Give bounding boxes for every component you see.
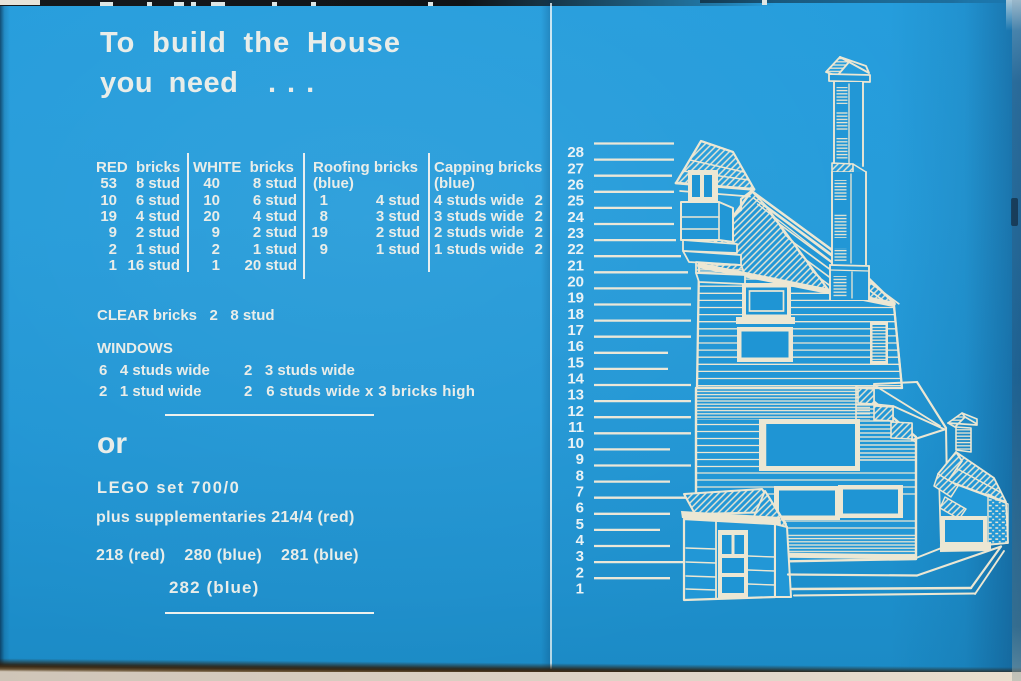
svg-text:16: 16 [567, 338, 584, 355]
svg-text:17: 17 [567, 322, 584, 339]
svg-text:21: 21 [567, 257, 584, 274]
svg-text:24: 24 [567, 209, 584, 226]
svg-text:18: 18 [567, 306, 584, 323]
svg-text:28: 28 [567, 144, 584, 161]
svg-text:22: 22 [567, 241, 584, 258]
svg-text:11: 11 [568, 419, 584, 436]
svg-text:2: 2 [576, 564, 584, 581]
svg-text:12: 12 [567, 403, 584, 420]
svg-text:13: 13 [567, 387, 584, 404]
svg-text:20: 20 [567, 274, 584, 291]
svg-text:8: 8 [576, 467, 584, 484]
svg-text:19: 19 [567, 290, 584, 307]
svg-text:15: 15 [567, 354, 584, 371]
svg-text:10: 10 [567, 435, 584, 452]
svg-text:7: 7 [576, 484, 584, 501]
svg-text:23: 23 [567, 225, 584, 242]
svg-text:1: 1 [576, 581, 584, 598]
svg-text:5: 5 [576, 516, 584, 533]
svg-text:26: 26 [567, 177, 584, 194]
svg-text:14: 14 [567, 370, 584, 387]
svg-text:3: 3 [576, 548, 584, 565]
svg-text:6: 6 [576, 500, 584, 517]
svg-text:9: 9 [576, 451, 584, 468]
svg-text:25: 25 [567, 193, 584, 210]
svg-text:4: 4 [576, 532, 585, 549]
svg-text:27: 27 [567, 160, 584, 177]
